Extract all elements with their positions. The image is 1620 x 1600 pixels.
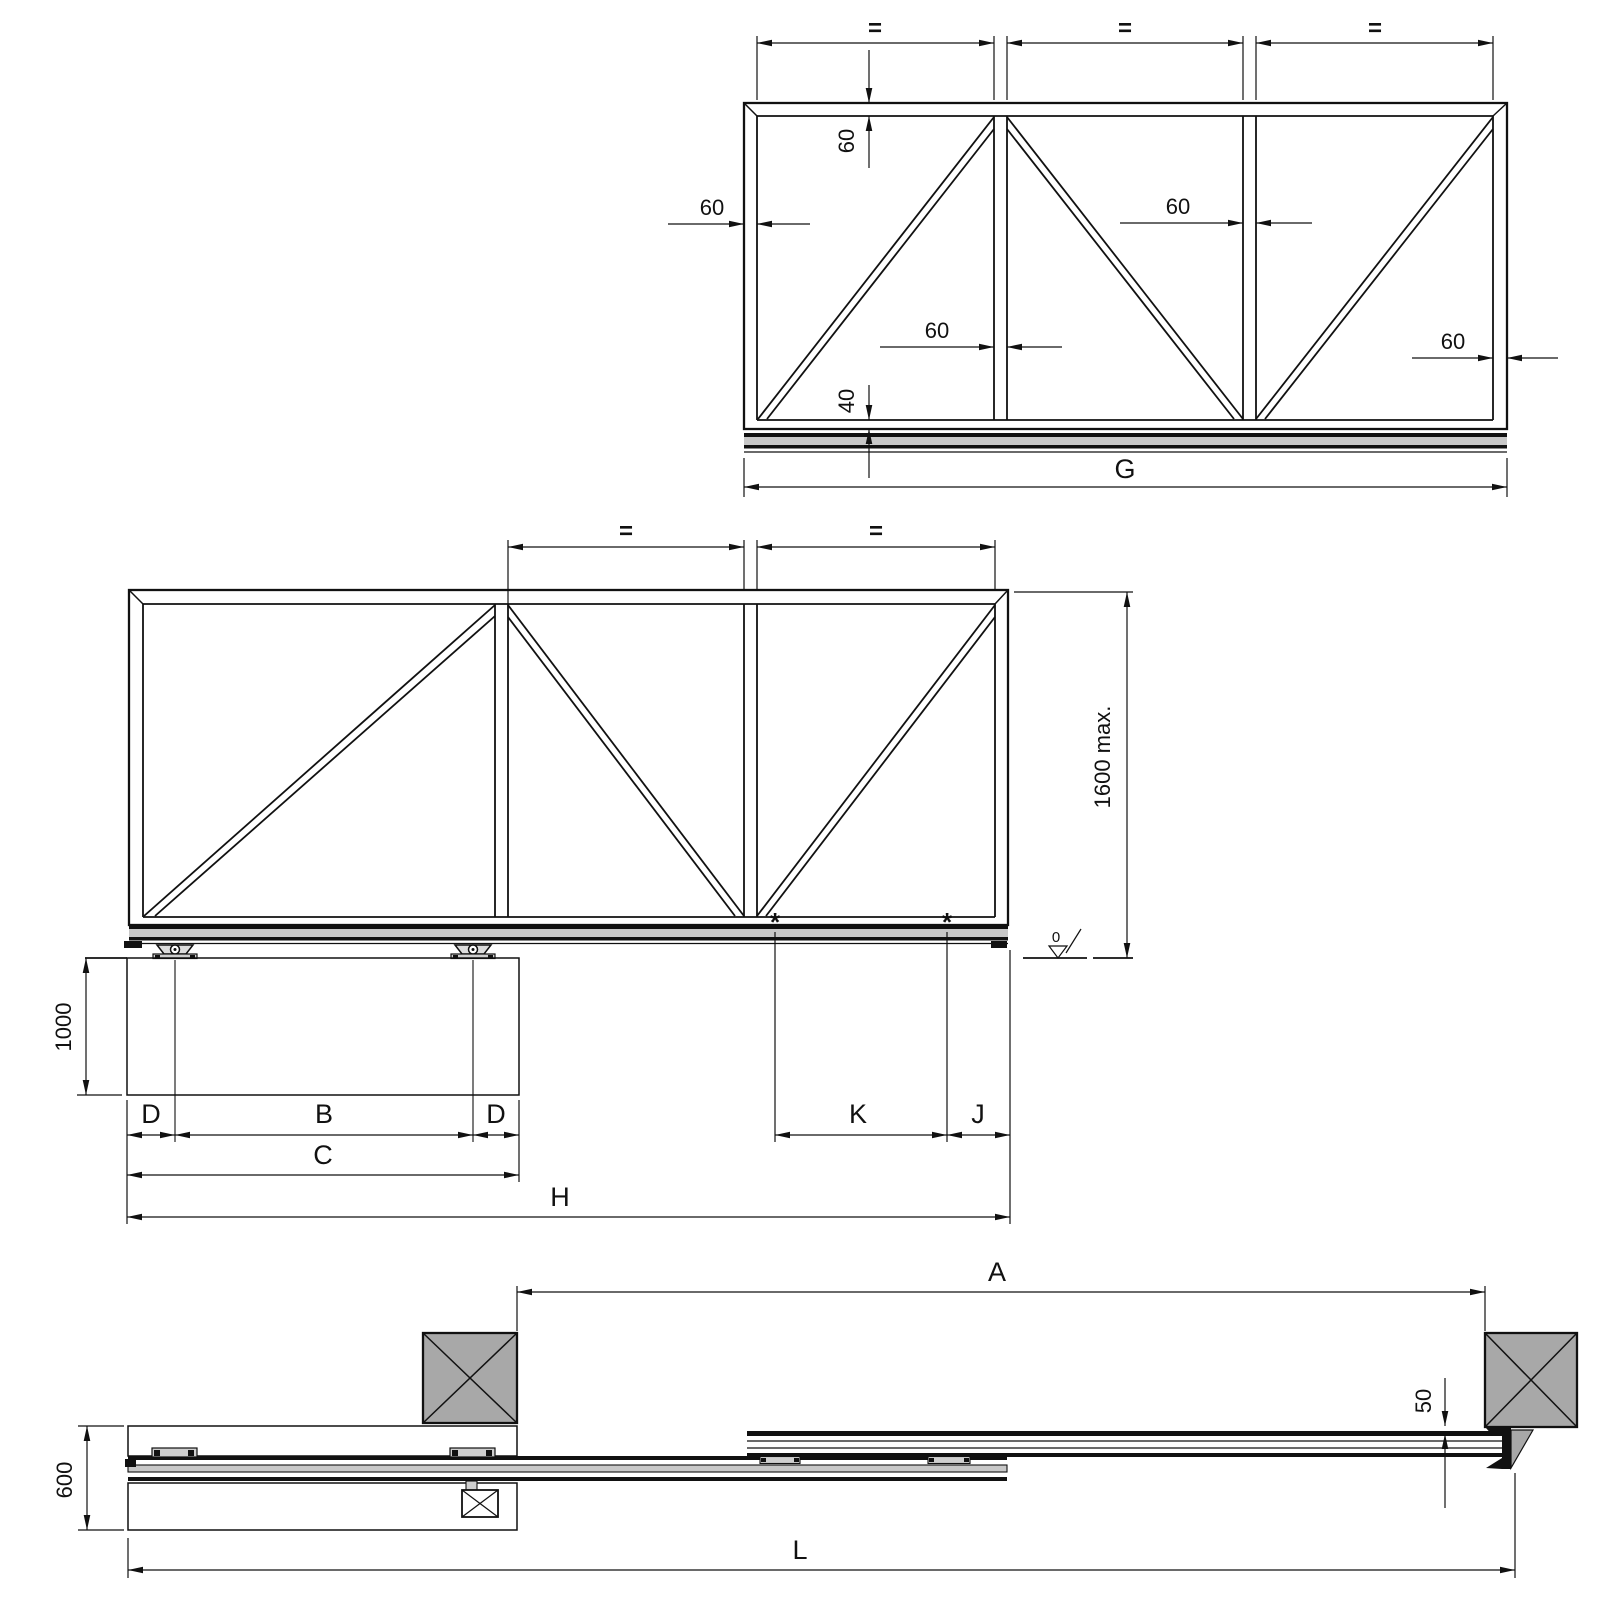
plan-gate-leaf: [747, 1431, 1508, 1457]
drawing-sheet: = = = 60 40 60 60: [0, 0, 1620, 1600]
plan-guide-pad-left: [760, 1457, 800, 1464]
plan-post-left: [423, 1333, 517, 1423]
panel-dim-bottom-rail-label: 40: [834, 389, 859, 413]
installed-equal-dim-2: =: [869, 518, 883, 545]
dim-overall-length-label: L: [792, 1535, 807, 1565]
installation-elevation-view: 0 * * = = 1600 max. 1000: [51, 518, 1133, 1224]
dim-foundation-depth-label: 1000: [51, 1003, 76, 1052]
dim-carriage-spacing-label: B: [315, 1099, 333, 1129]
panel-equal-dim-3: =: [1368, 15, 1382, 42]
dim-edge-offset-left-label: D: [141, 1099, 161, 1129]
installed-gate-frame: [129, 590, 1008, 925]
plan-base-plate-right: [450, 1448, 495, 1457]
dim-post-clearance-label: 50: [1411, 1389, 1436, 1413]
panel-bottom-track: [744, 433, 1507, 452]
panel-dim-overall-width-label: G: [1114, 454, 1135, 484]
dim-foundation-depth: 1000: [51, 958, 122, 1095]
plan-view: A 50 600 L: [52, 1257, 1577, 1578]
plan-base-plate-left: [152, 1448, 197, 1457]
elevation-extension-lines: [127, 932, 1010, 1224]
plan-guide-pad-right: [928, 1457, 970, 1464]
foundation-block: [127, 958, 519, 1095]
dim-tail-overhang-label: J: [971, 1099, 985, 1129]
panel-dim-right-stile-label: 60: [1441, 329, 1465, 354]
dim-gate-height: 1600 max.: [1014, 592, 1133, 958]
installed-equal-dim-1: =: [619, 518, 633, 545]
track-end-stop-right: [991, 941, 1007, 948]
plan-drive-unit: [462, 1481, 498, 1517]
dim-foundation-length: C: [127, 1140, 519, 1175]
datum-level-label: 0: [1052, 929, 1060, 946]
dim-edge-offset-right-label: D: [486, 1099, 506, 1129]
panel-dim-mullion-1-label: 60: [925, 318, 949, 343]
roller-carriage-left: [153, 945, 197, 959]
dim-foundation-length-label: C: [313, 1140, 333, 1170]
dim-overall-length: L: [128, 1473, 1515, 1578]
track-end-stop-left: [124, 941, 142, 948]
plan-rail-end-cap: [125, 1459, 136, 1467]
dim-foundation-segments: D B D: [127, 1099, 519, 1135]
installed-bottom-track: [124, 925, 1008, 948]
plan-post-right: [1485, 1333, 1577, 1427]
dim-cantilever-segments: K J: [775, 1099, 1010, 1135]
dim-clear-opening-label: A: [988, 1257, 1006, 1287]
panel-dim-mullion-2-label: 60: [1166, 194, 1190, 219]
panel-equal-dim-2: =: [1118, 15, 1132, 42]
dim-foundation-width: 600: [52, 1426, 124, 1530]
panel-dim-overall-width: G: [744, 454, 1507, 497]
dim-clear-opening: A: [517, 1257, 1485, 1331]
dim-gate-total-length: H: [127, 1182, 1010, 1217]
dim-gate-total-length-label: H: [550, 1182, 570, 1212]
panel-equal-dimensions: = = =: [757, 15, 1493, 100]
plan-foundation-lower: [128, 1483, 517, 1530]
dim-post-clearance: 50: [1411, 1378, 1445, 1508]
dim-cantilever-span-label: K: [849, 1099, 867, 1129]
panel-dim-top-rail-label: 60: [834, 129, 859, 153]
gate-technical-drawing: = = = 60 40 60 60: [0, 0, 1620, 1600]
dim-gate-height-label: 1600 max.: [1090, 706, 1115, 809]
dim-foundation-width-label: 600: [52, 1462, 77, 1499]
roller-carriage-right: [451, 945, 495, 959]
panel-dim-left-stile-label: 60: [700, 195, 724, 220]
plan-track-rail: [125, 1456, 1007, 1481]
datum-level-symbol: 0: [1049, 929, 1081, 958]
panel-elevation-view: = = = 60 40 60 60: [668, 15, 1558, 497]
panel-equal-dim-1: =: [868, 15, 882, 42]
